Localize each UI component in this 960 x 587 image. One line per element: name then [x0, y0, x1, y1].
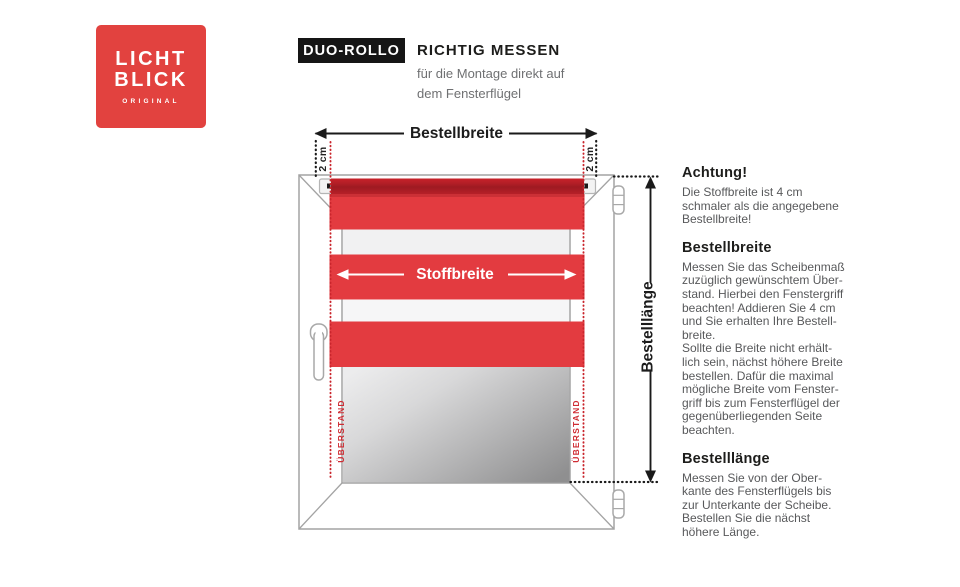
glass-pane	[343, 367, 570, 483]
page: LICHT BLICK ORIGINAL DUO-ROLLO RICHTIG M…	[0, 0, 960, 587]
fabric-stripe-1	[330, 194, 585, 230]
offset-2cm-label-left: 2 cm	[317, 137, 329, 181]
bestellbreite-label: Bestellbreite	[386, 125, 527, 143]
instructions-column: Achtung! Die Stoffbreite ist 4 cmschmale…	[682, 165, 852, 552]
section-bestelllaenge-heading: Bestelllänge	[682, 451, 852, 467]
hinge-top	[613, 186, 624, 214]
section-achtung-text: Die Stoffbreite ist 4 cmschmaler als die…	[682, 186, 852, 227]
stoffbreite-label: Stoffbreite	[385, 266, 525, 284]
bestelllaenge-label: Bestelllänge	[640, 257, 658, 398]
roller-bracket-right	[584, 179, 596, 194]
section-achtung-heading: Achtung!	[682, 165, 852, 181]
section-achtung: Achtung! Die Stoffbreite ist 4 cmschmale…	[682, 165, 852, 227]
section-bestellbreite-text: Messen Sie das Scheibenmaßzuzüglich gewü…	[682, 261, 852, 438]
ueberstand-label-left: ÜBERSTAND	[336, 391, 346, 471]
roller-tube	[331, 179, 584, 195]
section-bestellbreite: Bestellbreite Messen Sie das Scheibenmaß…	[682, 240, 852, 438]
sheer-band-upper	[343, 229, 569, 255]
sheer-band-lower	[343, 300, 569, 322]
bestellbreite-guide-dotted-lines	[316, 141, 596, 176]
fabric-stripe-3	[330, 322, 585, 368]
offset-2cm-label-right: 2 cm	[584, 137, 596, 181]
hinge-bottom	[613, 490, 624, 518]
section-bestellbreite-heading: Bestellbreite	[682, 240, 852, 256]
ueberstand-label-right: ÜBERSTAND	[571, 391, 581, 471]
section-bestelllaenge-text: Messen Sie von der Ober-kante des Fenste…	[682, 472, 852, 540]
fabric-stripe-1-shadow	[330, 194, 585, 197]
section-bestelllaenge: Bestelllänge Messen Sie von der Ober-kan…	[682, 451, 852, 540]
